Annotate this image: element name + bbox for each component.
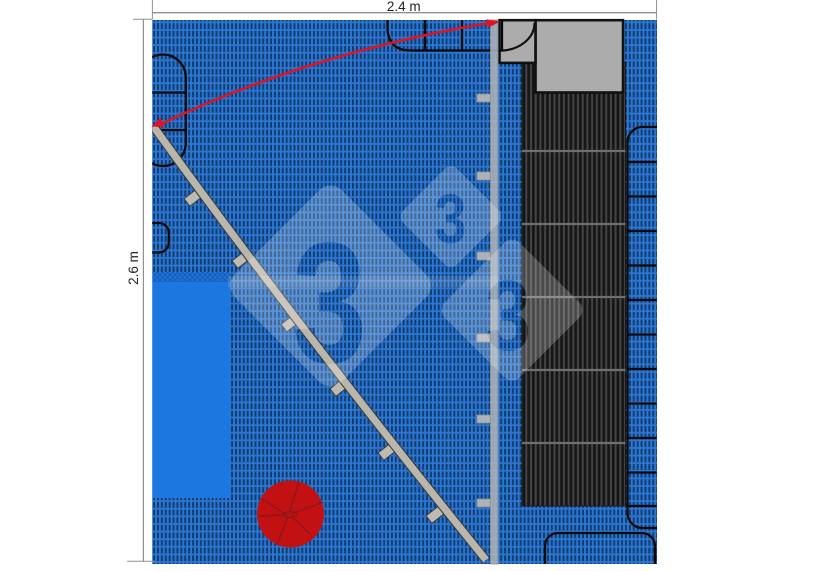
svg-text:2.6 m: 2.6 m	[126, 251, 141, 285]
svg-text:2.4 m: 2.4 m	[387, 0, 421, 14]
